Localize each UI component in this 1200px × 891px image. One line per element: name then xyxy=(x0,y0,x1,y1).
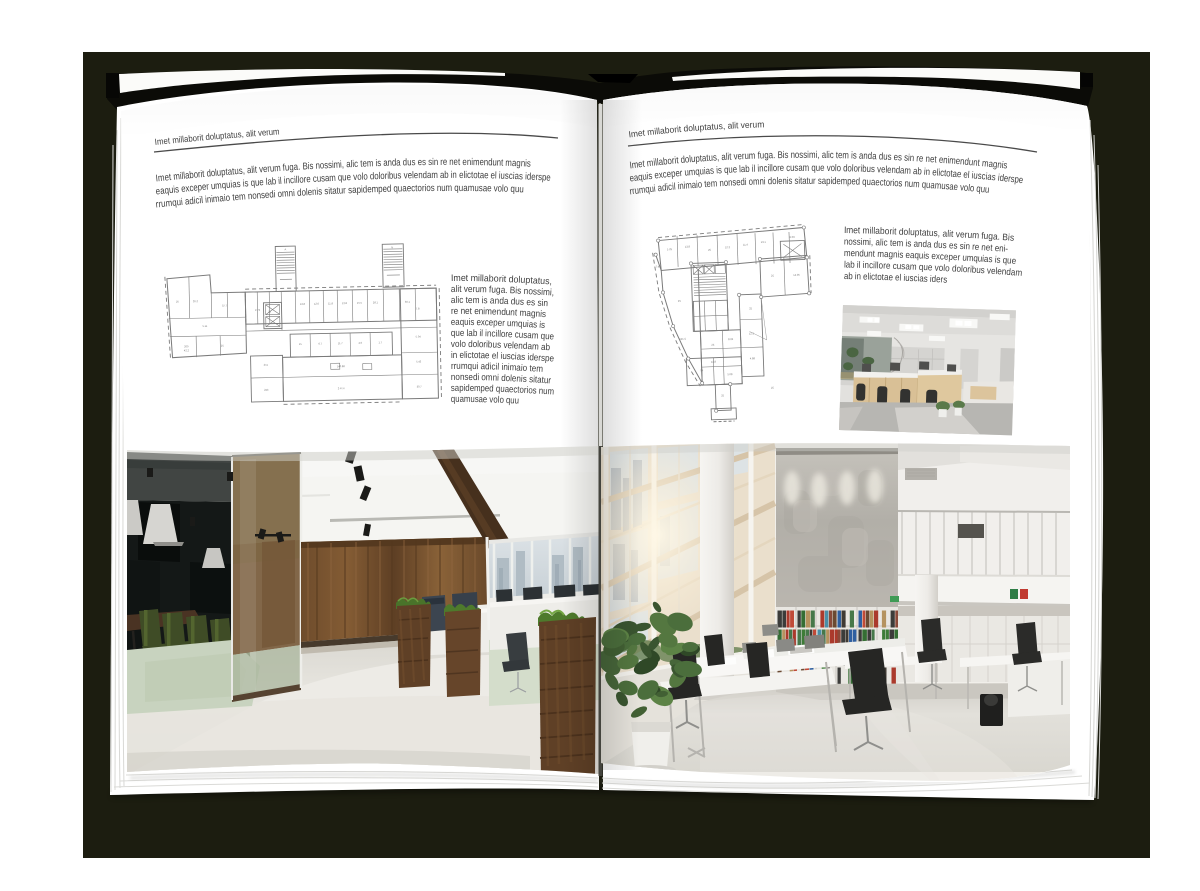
svg-text:140.88: 140.88 xyxy=(337,364,346,368)
svg-text:28.1: 28.1 xyxy=(373,300,379,304)
svg-text:quamusae volo quu: quamusae volo quu xyxy=(451,393,519,406)
svg-text:30.7: 30.7 xyxy=(417,384,423,388)
svg-text:30.1: 30.1 xyxy=(405,300,411,304)
svg-text:4.6: 4.6 xyxy=(358,341,362,345)
svg-text:12.5: 12.5 xyxy=(749,331,755,335)
svg-text:37.7: 37.7 xyxy=(222,304,228,308)
svg-text:1-25: 1-25 xyxy=(667,247,673,251)
svg-text:8.06: 8.06 xyxy=(728,337,734,341)
svg-text:200: 200 xyxy=(184,344,189,348)
svg-text:5.04: 5.04 xyxy=(416,334,422,338)
svg-text:6.7: 6.7 xyxy=(318,342,322,346)
svg-text:13.8: 13.8 xyxy=(342,301,348,305)
svg-text:121.5: 121.5 xyxy=(679,337,686,341)
svg-text:14.06: 14.06 xyxy=(793,273,800,277)
svg-text:1.7: 1.7 xyxy=(378,340,382,344)
svg-text:15.5: 15.5 xyxy=(357,301,363,305)
svg-text:2-й эт: 2-й эт xyxy=(338,386,346,390)
svg-text:11.4: 11.4 xyxy=(743,242,749,246)
svg-text:7.8: 7.8 xyxy=(416,306,420,310)
svg-text:4.88: 4.88 xyxy=(750,356,756,360)
svg-text:12.2: 12.2 xyxy=(725,245,731,249)
svg-text:24b: 24b xyxy=(264,388,269,392)
svg-text:30.2: 30.2 xyxy=(193,299,199,303)
svg-text:13.1: 13.1 xyxy=(761,240,767,244)
svg-text:2.72: 2.72 xyxy=(255,308,261,312)
svg-text:27a: 27a xyxy=(264,363,269,367)
svg-text:7.95: 7.95 xyxy=(655,264,661,268)
svg-text:13.8: 13.8 xyxy=(300,302,306,306)
svg-text:42.2: 42.2 xyxy=(184,348,190,352)
svg-text:5.11: 5.11 xyxy=(202,324,207,328)
svg-text:12.6: 12.6 xyxy=(314,302,320,306)
svg-text:5.08: 5.08 xyxy=(727,372,733,376)
svg-text:13.8: 13.8 xyxy=(685,244,691,248)
svg-text:11.8: 11.8 xyxy=(328,301,333,305)
svg-text:13.8: 13.8 xyxy=(711,360,717,364)
svg-text:5.43: 5.43 xyxy=(416,359,422,363)
svg-text:6.09: 6.09 xyxy=(790,235,796,239)
svg-text:11.7: 11.7 xyxy=(338,341,343,345)
